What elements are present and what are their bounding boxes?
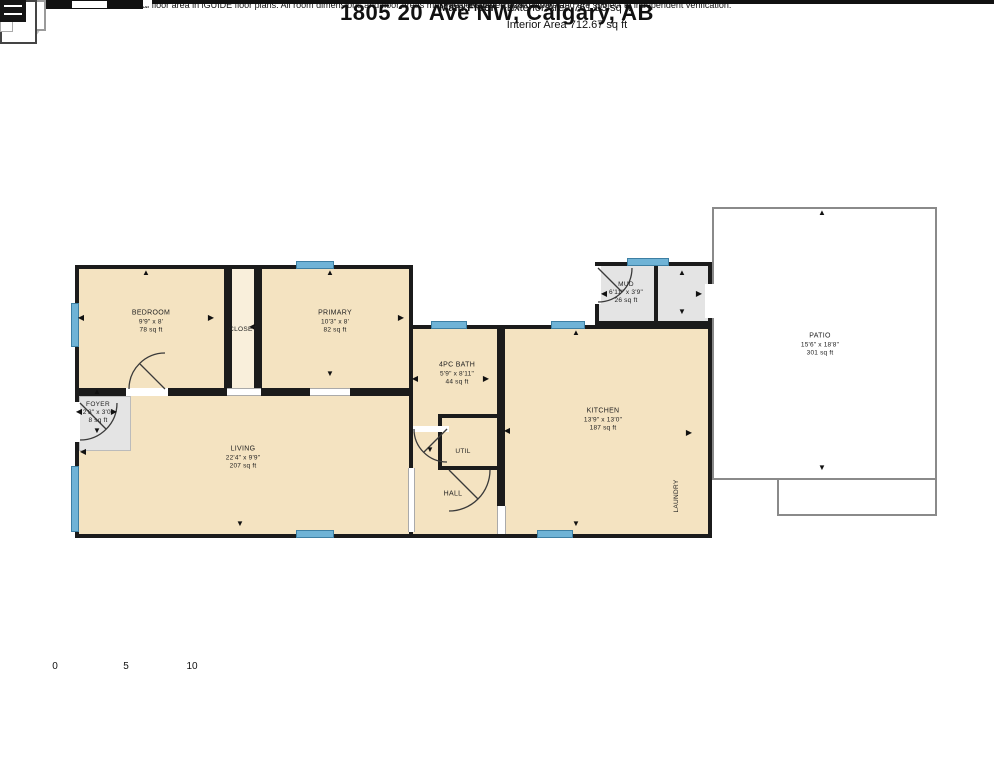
window-marker xyxy=(627,258,669,266)
label-patio: PATIO15'6" x 18'8"301 sq ft xyxy=(760,333,880,358)
dimension-arrow-icon xyxy=(93,388,101,396)
room-util xyxy=(438,414,501,470)
floorplan-page: 1805 20 Ave NW, Calgary, AB Main Floor E… xyxy=(0,0,994,768)
dimension-arrow-icon xyxy=(678,308,686,316)
dimension-arrow-icon xyxy=(818,464,826,472)
dimension-arrow-icon xyxy=(678,269,686,277)
dimension-arrow-icon xyxy=(696,290,702,298)
label-primary: PRIMARY10'3" x 8'82 sq ft xyxy=(275,310,395,335)
dimension-arrow-icon xyxy=(572,329,580,337)
window-marker xyxy=(71,303,79,347)
furnace-icon xyxy=(0,0,26,22)
label-living: LIVING22'4" x 9'9"207 sq ft xyxy=(183,446,303,471)
doorway-threshold xyxy=(310,388,350,396)
window-marker xyxy=(431,321,467,329)
label-foyer: FOYER2'8" x 3'0"8 sq ft xyxy=(63,401,133,425)
patio-extension xyxy=(777,478,937,516)
dimension-arrow-icon xyxy=(93,427,101,435)
window-marker xyxy=(71,466,79,532)
dimension-arrow-icon xyxy=(818,209,826,217)
door-opening xyxy=(126,388,168,396)
label-laundry: LAUNDRY xyxy=(673,436,681,556)
dimension-arrow-icon xyxy=(326,269,334,277)
scale-tick-10: 10 xyxy=(186,661,197,672)
label-mud: MUD6'11" x 3'9"26 sq ft xyxy=(566,281,686,305)
dimension-arrow-icon xyxy=(236,520,244,528)
dimension-arrow-icon xyxy=(80,448,86,456)
doorway-threshold xyxy=(497,506,506,534)
label-util: UTIL xyxy=(403,448,523,456)
doorway-threshold xyxy=(408,468,415,532)
dimension-arrow-icon xyxy=(504,427,510,435)
label-kitchen: KITCHEN13'9" x 13'0"187 sq ft xyxy=(543,408,663,433)
doorway-threshold xyxy=(227,388,261,396)
label-bath: 4PC BATH5'9" x 8'11"44 sq ft xyxy=(397,362,517,387)
door-opening xyxy=(413,426,449,432)
window-marker xyxy=(296,530,334,538)
dimension-arrow-icon xyxy=(686,429,692,437)
door-opening xyxy=(705,284,714,318)
dimension-arrow-icon xyxy=(572,520,580,528)
interior-area: Interior Area 712.67 sq ft xyxy=(507,17,631,34)
window-marker xyxy=(537,530,573,538)
label-hall: HALL xyxy=(393,491,513,500)
scale-tick-0: 0 xyxy=(52,661,58,672)
dimension-arrow-icon xyxy=(142,269,150,277)
scale-tick-5: 5 xyxy=(123,661,129,672)
dimension-arrow-icon xyxy=(78,314,84,322)
dimension-arrow-icon xyxy=(398,314,404,322)
dimension-arrow-icon xyxy=(326,370,334,378)
